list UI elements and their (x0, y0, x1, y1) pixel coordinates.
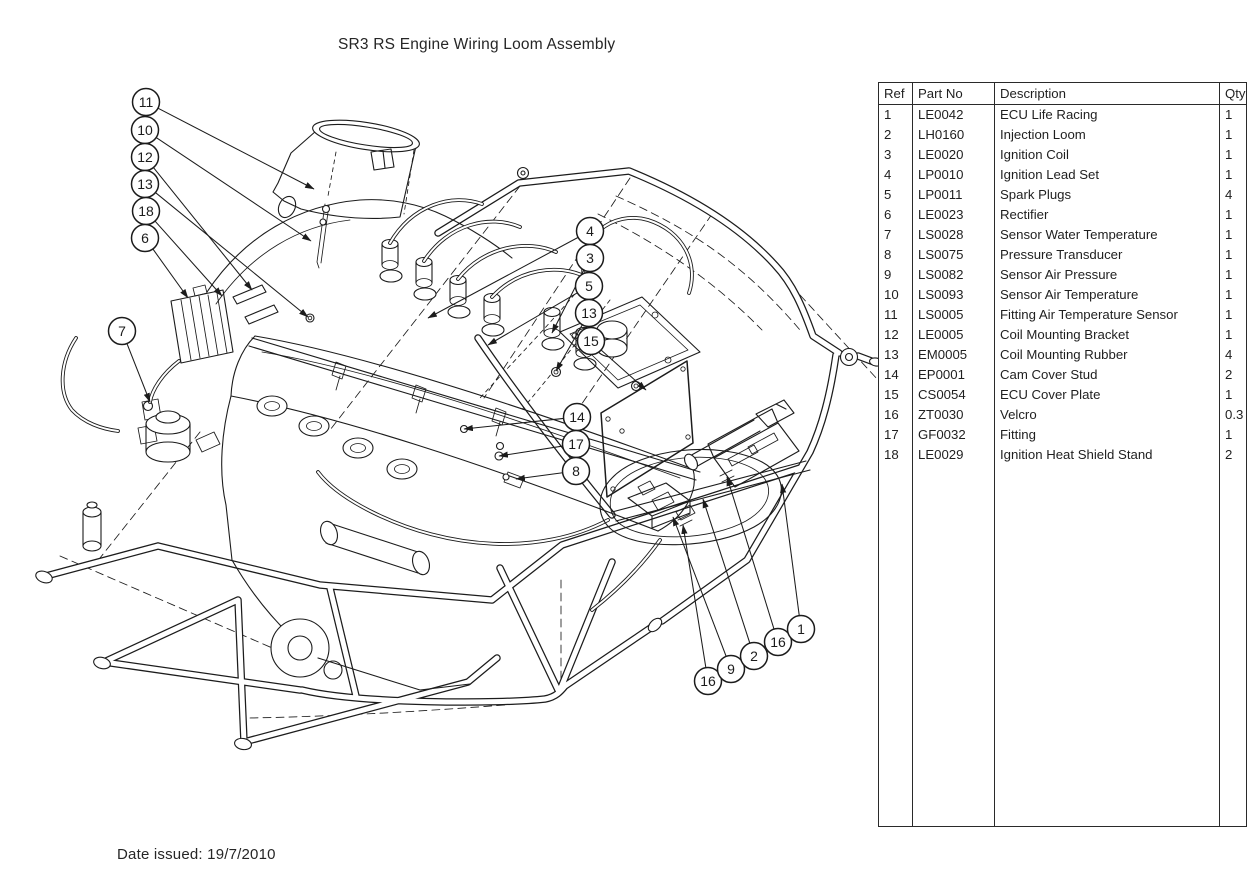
leader-line-1 (782, 484, 799, 616)
cell-qty: 0.3 (1219, 405, 1246, 425)
balloon-number: 14 (569, 409, 585, 425)
cell-qty: 1 (1219, 245, 1246, 265)
cell-part-no: LE0005 (912, 325, 994, 345)
cell-part-no: GF0032 (912, 425, 994, 445)
leader-line-11 (158, 108, 314, 189)
leader-line-6 (153, 249, 188, 298)
cell-ref: 17 (879, 425, 912, 445)
balloon-number: 16 (770, 634, 786, 650)
balloon-number: 6 (141, 230, 149, 246)
header-qty: Qty (1219, 83, 1246, 104)
balloon-number: 1 (797, 621, 805, 637)
balloon-number: 10 (137, 122, 153, 138)
cell-description: Coil Mounting Bracket (994, 325, 1219, 345)
header-description: Description (994, 83, 1219, 104)
table-row: 15CS0054ECU Cover Plate1 (879, 385, 1246, 405)
cell-description: Coil Mounting Rubber (994, 345, 1219, 365)
assembly-diagram: 1110121318674351315141781692161 (0, 0, 880, 886)
balloon-number: 13 (581, 305, 597, 321)
leader-line-17 (499, 446, 563, 456)
parts-table-filler (879, 465, 1246, 826)
cell-part-no: LS0082 (912, 265, 994, 285)
cell-qty: 1 (1219, 205, 1246, 225)
cell-ref: 3 (879, 145, 912, 165)
leader-line-7 (127, 344, 150, 402)
table-row: 9LS0082Sensor Air Pressure1 (879, 265, 1246, 285)
cell-ref: 10 (879, 285, 912, 305)
cell-qty: 1 (1219, 305, 1246, 325)
balloon-number: 13 (137, 176, 153, 192)
cell-ref: 13 (879, 345, 912, 365)
table-row: 8LS0075Pressure Transducer1 (879, 245, 1246, 265)
cell-qty: 1 (1219, 425, 1246, 445)
cell-description: Sensor Air Pressure (994, 265, 1219, 285)
cell-part-no: LE0020 (912, 145, 994, 165)
cell-part-no: LS0093 (912, 285, 994, 305)
cell-ref: 14 (879, 365, 912, 385)
cell-ref: 5 (879, 185, 912, 205)
coil-mounting-rubber (552, 368, 561, 377)
table-row: 2LH0160Injection Loom1 (879, 125, 1246, 145)
cell-ref: 11 (879, 305, 912, 325)
cell-qty: 2 (1219, 445, 1246, 465)
table-row: 10LS0093Sensor Air Temperature1 (879, 285, 1246, 305)
balloon-number: 3 (586, 250, 594, 266)
cell-part-no: LP0011 (912, 185, 994, 205)
table-row: 1LE0042ECU Life Racing1 (879, 105, 1246, 125)
cell-description: Sensor Water Temperature (994, 225, 1219, 245)
balloon-number: 11 (139, 94, 154, 110)
ecu-assembly (600, 361, 810, 545)
ecu-mounting-rail (612, 461, 810, 521)
balloon-number: 8 (572, 463, 580, 479)
leader-line-9 (673, 517, 726, 656)
balloon-number: 15 (583, 333, 599, 349)
table-row: 7LS0028Sensor Water Temperature1 (879, 225, 1246, 245)
leader-line-2 (703, 499, 750, 643)
fuel-rail (249, 338, 700, 480)
parts-table: Ref Part No Description Qty 1LE0042ECU L… (878, 82, 1247, 827)
airbox (273, 114, 421, 268)
cell-part-no: ZT0030 (912, 405, 994, 425)
balloon-number: 7 (118, 323, 126, 339)
table-row: 13EM0005Coil Mounting Rubber4 (879, 345, 1246, 365)
cell-description: Pressure Transducer (994, 245, 1219, 265)
cell-qty: 1 (1219, 225, 1246, 245)
cell-ref: 7 (879, 225, 912, 245)
table-row: 11LS0005Fitting Air Temperature Sensor1 (879, 305, 1246, 325)
header-ref: Ref (879, 83, 912, 104)
cell-ref: 12 (879, 325, 912, 345)
cell-part-no: CS0054 (912, 385, 994, 405)
table-row: 5LP0011Spark Plugs4 (879, 185, 1246, 205)
heat-shield-stands (233, 285, 278, 324)
table-row: 16ZT0030Velcro0.3 (879, 405, 1246, 425)
balloon-number: 5 (585, 278, 593, 294)
cell-qty: 4 (1219, 185, 1246, 205)
ecu-cover-plate (601, 361, 693, 497)
cell-part-no: LS0075 (912, 245, 994, 265)
cell-description: Sensor Air Temperature (994, 285, 1219, 305)
cell-part-no: LH0160 (912, 125, 994, 145)
leader-line-13 (155, 193, 308, 317)
cell-description: Injection Loom (994, 125, 1219, 145)
cell-description: Fitting (994, 425, 1219, 445)
cell-part-no: LP0010 (912, 165, 994, 185)
parts-table-header: Ref Part No Description Qty (879, 83, 1246, 105)
cell-qty: 1 (1219, 125, 1246, 145)
cell-ref: 9 (879, 265, 912, 285)
balloon-number: 16 (700, 673, 716, 689)
cell-description: Spark Plugs (994, 185, 1219, 205)
cell-description: Rectifier (994, 205, 1219, 225)
cell-qty: 1 (1219, 385, 1246, 405)
balloon-number: 17 (568, 436, 584, 452)
table-row: 14EP0001Cam Cover Stud2 (879, 365, 1246, 385)
table-row: 17GF0032Fitting1 (879, 425, 1246, 445)
cell-description: Ignition Lead Set (994, 165, 1219, 185)
cell-ref: 2 (879, 125, 912, 145)
cell-description: Velcro (994, 405, 1219, 425)
balloon-number: 2 (750, 648, 758, 664)
parts-table-body: 1LE0042ECU Life Racing12LH0160Injection … (879, 105, 1246, 465)
date-issued: Date issued: 19/7/2010 (117, 846, 276, 863)
leader-line-8 (516, 473, 563, 479)
cell-ref: 4 (879, 165, 912, 185)
cell-part-no: LE0023 (912, 205, 994, 225)
header-part-no: Part No (912, 83, 994, 104)
cell-part-no: LS0005 (912, 305, 994, 325)
cell-qty: 2 (1219, 365, 1246, 385)
cell-description: ECU Cover Plate (994, 385, 1219, 405)
table-row: 6LE0023Rectifier1 (879, 205, 1246, 225)
balloon-number: 4 (586, 223, 594, 239)
cell-qty: 1 (1219, 105, 1246, 125)
engine-linework (222, 240, 700, 691)
cell-description: Fitting Air Temperature Sensor (994, 305, 1219, 325)
cell-description: ECU Life Racing (994, 105, 1219, 125)
balloon-number: 12 (137, 149, 153, 165)
cell-qty: 1 (1219, 285, 1246, 305)
cell-description: Ignition Heat Shield Stand (994, 445, 1219, 465)
cell-ref: 16 (879, 405, 912, 425)
cell-part-no: LS0028 (912, 225, 994, 245)
drawing-sheet: SR3 RS Engine Wiring Loom Assembly (0, 0, 1255, 886)
table-row: 12LE0005Coil Mounting Bracket1 (879, 325, 1246, 345)
balloon-number: 18 (138, 203, 154, 219)
cell-ref: 15 (879, 385, 912, 405)
leader-line-10 (156, 138, 311, 241)
cell-part-no: LE0029 (912, 445, 994, 465)
callout-balloons: 1110121318674351315141781692161 (109, 89, 815, 695)
cell-description: Cam Cover Stud (994, 365, 1219, 385)
cell-qty: 4 (1219, 345, 1246, 365)
air-temp-fitting (323, 206, 330, 213)
table-row: 3LE0020Ignition Coil1 (879, 145, 1246, 165)
cell-description: Ignition Coil (994, 145, 1219, 165)
table-row: 4LP0010Ignition Lead Set1 (879, 165, 1246, 185)
table-row: 18LE0029Ignition Heat Shield Stand2 (879, 445, 1246, 465)
leader-line-5 (488, 293, 577, 345)
cell-ref: 18 (879, 445, 912, 465)
cell-ref: 8 (879, 245, 912, 265)
leader-line-18 (155, 221, 222, 296)
cell-part-no: EM0005 (912, 345, 994, 365)
leader-line-12 (153, 168, 252, 290)
cell-qty: 1 (1219, 265, 1246, 285)
cell-ref: 6 (879, 205, 912, 225)
cell-part-no: EP0001 (912, 365, 994, 385)
cell-qty: 1 (1219, 165, 1246, 185)
balloon-number: 9 (727, 661, 735, 677)
cell-part-no: LE0042 (912, 105, 994, 125)
cell-ref: 1 (879, 105, 912, 125)
cell-qty: 1 (1219, 145, 1246, 165)
water-temp-assembly (83, 402, 220, 552)
cell-qty: 1 (1219, 325, 1246, 345)
